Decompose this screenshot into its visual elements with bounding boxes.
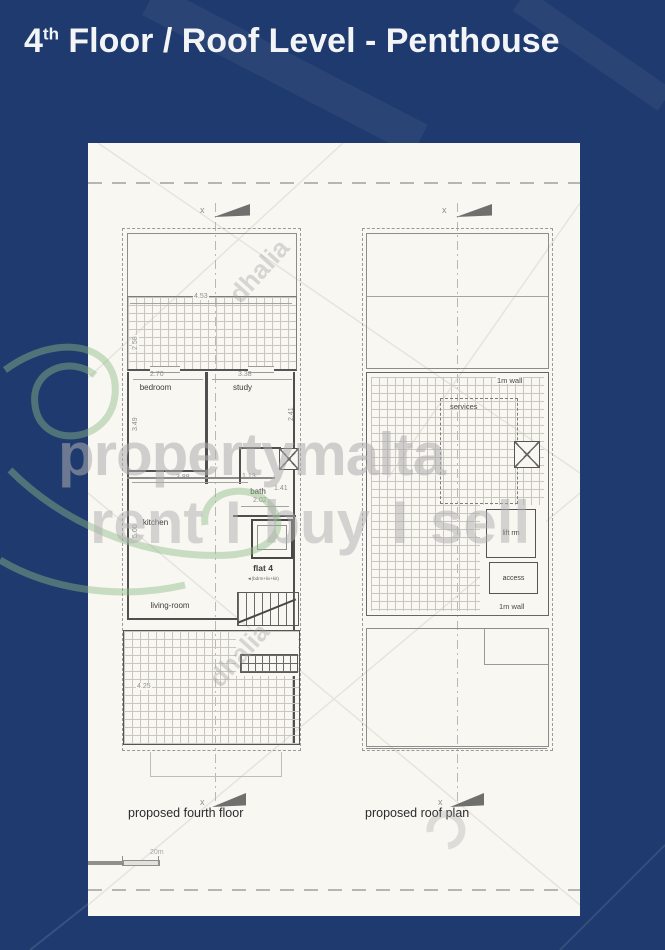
dimension-line: [212, 379, 292, 380]
boundary-dashed-line-bottom: [88, 889, 580, 891]
stair-direction-line: [238, 598, 296, 623]
fourth-floor-terrace-hatched: [127, 296, 297, 371]
dim-terrace-depth: 2.58: [132, 335, 139, 351]
section-marker-letter: x: [200, 206, 205, 215]
unit-label-flat4: flat 4: [238, 564, 288, 573]
dim-bedroom-width: 2.70: [150, 371, 164, 378]
dim-terrace-width: 4.53: [193, 293, 209, 300]
scale-bar-segment: [123, 860, 160, 866]
scale-bar-segment: [88, 861, 123, 865]
caption-roof-plan: proposed roof plan: [365, 806, 469, 820]
title-number: 4: [24, 22, 43, 60]
stairs-upper: [237, 592, 299, 626]
label-services: services: [450, 403, 478, 410]
dim-study-depth: 2.41: [288, 407, 295, 421]
dim-study-width: 3.38: [238, 371, 252, 378]
dimension-line: [133, 379, 203, 380]
roof-front-open-area: [366, 233, 549, 369]
access-box: access: [489, 562, 538, 594]
section-marker-letter: x: [442, 206, 447, 215]
label-access: access: [503, 575, 525, 582]
title-ordinal: th: [43, 25, 59, 44]
balcony-outline: [150, 752, 282, 777]
shaft-x-icon: [514, 441, 540, 468]
room-label-study: study: [210, 383, 275, 392]
scale-bar-tick: [158, 856, 159, 866]
page: 4th Floor / Roof Level - Penthouse x 4.5…: [0, 0, 665, 950]
boundary-dashed-line-top: [88, 182, 580, 184]
scale-bar-label: 20m: [150, 849, 164, 856]
title-text: Floor / Roof Level - Penthouse: [59, 22, 560, 60]
caption-fourth-floor: proposed fourth floor: [128, 806, 243, 820]
roof-rear-divider: [484, 629, 485, 664]
wall-segment: [127, 618, 237, 620]
room-label-bedroom: bedroom: [123, 383, 188, 392]
page-title: 4th Floor / Roof Level - Penthouse: [24, 22, 644, 61]
roof-rear-area: [366, 628, 549, 747]
roof-edge-double-line: [366, 748, 547, 749]
roof-rear-divider: [484, 664, 548, 665]
watermark-brand-line2: rent I buy I sell: [90, 488, 530, 557]
label-1m-wall-top: 1m wall: [496, 377, 523, 384]
scale-bar: [88, 859, 159, 867]
dimension-line: [130, 303, 292, 304]
dim-lower-terrace-depth: 4.25: [136, 683, 152, 690]
room-label-living-room: living-room: [130, 601, 210, 610]
unit-label-flat4-note: ◄(bdrm+liv+kit): [234, 574, 292, 583]
scale-bar-tick: [122, 856, 123, 866]
roof-front-divider-line: [367, 296, 548, 297]
watermark-brand-line1: propertymalta: [58, 420, 445, 489]
label-1m-wall-bottom: 1m wall: [498, 603, 525, 610]
